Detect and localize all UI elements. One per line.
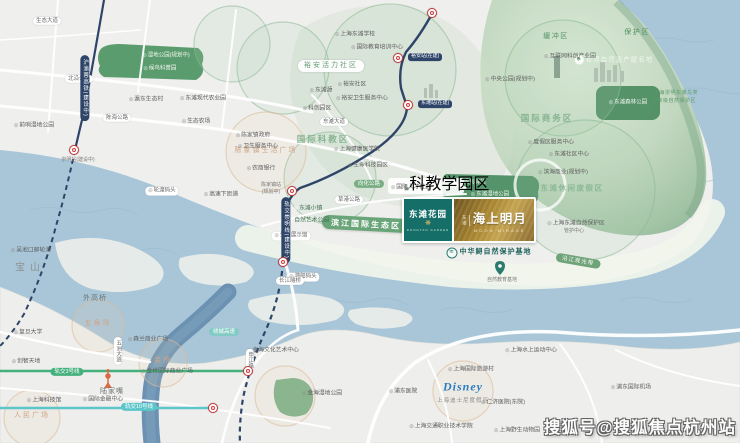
metro-station-marker bbox=[278, 257, 288, 267]
map-label-poi-bld: 科教学园区 bbox=[405, 176, 490, 194]
map-label-poi: 东滩现代农业园 bbox=[180, 96, 226, 103]
map-label-poi: 互联网科创产业园 bbox=[544, 54, 596, 61]
wheat-sprig-icon: ❋ bbox=[425, 222, 431, 226]
map-label-poi: 复旦大学 bbox=[14, 330, 43, 337]
project-logo-lockup: 东滩花园 ❋ DONGTAN GARDEN 东滩 海上明月 MOON MIRAG… bbox=[402, 197, 536, 243]
moon-mirage-name: 海上明月 bbox=[473, 208, 527, 227]
park-dongtan-forest: 东滩森林公园 bbox=[609, 100, 647, 107]
map-label-poi: 上海健康医学院 bbox=[334, 147, 380, 154]
map-label-pill-teal: 绕城高速 bbox=[209, 328, 239, 336]
map-label-poi: 科创园区 bbox=[303, 106, 332, 113]
zone-business-district: 国际商务区 bbox=[521, 114, 574, 124]
map-label-poi: 生态农场 bbox=[182, 119, 211, 126]
disney-resort-label: 上海迪士尼度假区 bbox=[437, 396, 489, 404]
map-label-poi: 国际金融中心 bbox=[83, 397, 123, 404]
map-label-tinygray: (规划中) bbox=[262, 190, 280, 196]
map-label-poi: 金桥国际商业广场 bbox=[141, 369, 193, 376]
rail-chongming-line-label: 轨交崇明线(建设中) bbox=[281, 197, 290, 263]
map-label-poi: 森兰商业广场 bbox=[128, 337, 168, 344]
map-label-poi-light: 东滩小镇 bbox=[294, 206, 323, 213]
map-label-pill-road: 草港公路 bbox=[335, 196, 363, 204]
map-label-poi: 浦东医院 bbox=[389, 389, 418, 396]
map-label-poi: 国际教育培训中心 bbox=[351, 45, 403, 52]
map-label-poi: 吴淞口邮轮港 bbox=[11, 248, 51, 255]
station-label-yuan: 裕安站(在建) bbox=[408, 53, 442, 61]
dongtan-garden-latin: DONGTAN GARDEN bbox=[407, 228, 449, 232]
map-label-poi: 上海野生动物园 bbox=[494, 428, 540, 435]
metro-station-marker bbox=[403, 100, 413, 110]
zone-protection: 保护区 bbox=[624, 29, 650, 37]
map-label-pill-green: 沿江观光带 bbox=[555, 253, 600, 270]
map-label-poi: 创智天地 bbox=[12, 359, 41, 366]
metro-station-marker bbox=[243, 366, 253, 376]
rail-hsr-label: 沪渝蓉高铁(建设中) bbox=[80, 55, 89, 121]
map-label-poi-light: 自然艺术公园 bbox=[289, 218, 329, 225]
map-label-pill-road-v: 五洲大道 bbox=[114, 337, 122, 365]
map-label-poi: 滨海商业(规划中) bbox=[538, 170, 588, 177]
station-label-dongtan: 东滩站(在建) bbox=[418, 100, 452, 108]
moon-mirage-logo: 东滩 海上明月 MOON MIRAGE bbox=[454, 199, 534, 241]
map-label-ztan: 金桥 bbox=[154, 357, 172, 365]
metro-station-marker bbox=[287, 186, 297, 196]
map-label-pill-road: 长江隧桥 bbox=[276, 277, 304, 285]
map-label-poi: 农商银行 bbox=[247, 166, 276, 173]
watermark: 搜狐号@搜狐焦点杭州站 bbox=[544, 414, 736, 438]
map-label-poi: 生命科技园区 bbox=[348, 163, 388, 170]
map-label-poi: 前哨湿地公园 bbox=[14, 123, 54, 130]
map-label-poi: 东滩社区中心 bbox=[549, 152, 589, 159]
map-label-poi: 上海交通职业技术学院 bbox=[409, 424, 472, 431]
location-map-image: 缓冲区保护区世界自然遗产提名地上海崇明东滩鸟类国家级自然保护区东滩森林公园裕安活… bbox=[0, 0, 740, 443]
dongtan-garden-logo: 东滩花园 ❋ DONGTAN GARDEN bbox=[404, 199, 452, 241]
map-label-pill-road: 陈海公路 bbox=[103, 114, 131, 122]
map-label-ztan: 五角场 bbox=[85, 320, 112, 328]
station-label-chongming: 崇明站(建设中) bbox=[61, 158, 94, 164]
map-label-poi: 金海文化艺术中心 bbox=[247, 348, 299, 355]
dongtan-garden-name: 东滩花园 bbox=[409, 208, 447, 220]
metro-line3-label: 轨交3号线 bbox=[50, 368, 83, 376]
map-label-ztan: 人民广场 bbox=[14, 412, 50, 420]
station-label-chenjiazhen: 陈家镇站 bbox=[261, 183, 281, 189]
zone-science-education: 国际科教区 bbox=[297, 135, 350, 145]
map-label-poi: 东滩源 bbox=[310, 88, 333, 95]
metro-station-marker bbox=[393, 53, 403, 63]
map-label-tinygray: 管护中心 bbox=[564, 229, 584, 235]
map-label-poi: 陈家镇政府 bbox=[236, 133, 270, 140]
map-label-pill-green-sm: 向化公路 bbox=[354, 180, 384, 188]
map-label-tg: 国家级自然保护区 bbox=[652, 99, 696, 105]
map-label-pill-road: 生态大道 bbox=[33, 17, 61, 25]
metro-station-marker bbox=[427, 8, 437, 18]
map-label-tg: 上海崇明东滩鸟类 bbox=[654, 91, 698, 97]
moon-mirage-latin: MOON MIRAGE bbox=[474, 228, 525, 233]
map-labels-layer: 缓冲区保护区世界自然遗产提名地上海崇明东滩鸟类国家级自然保护区东滩森林公园裕安活… bbox=[0, 0, 740, 443]
zone-riverside-eco: 滨江国际生态区 bbox=[322, 215, 411, 234]
metro-station-marker bbox=[69, 145, 79, 155]
map-label-poi: 裕安卫生服务中心 bbox=[336, 96, 388, 103]
metro-line10-label: 轨交10号线 bbox=[121, 403, 157, 411]
disney-logo: Disney bbox=[443, 380, 483, 395]
map-label-park-item: 湿地公园(规划中) bbox=[142, 53, 190, 60]
map-label-poi: 瀛东生态村 bbox=[129, 97, 163, 104]
map-label-poi: 上海东滩自然保护区 bbox=[547, 221, 605, 228]
map-label-poi: 中央公园(规划中) bbox=[485, 77, 535, 84]
map-label-poi: 高速下匝道 bbox=[204, 192, 238, 199]
map-label-tinygray: 自然教育基地 bbox=[487, 278, 517, 284]
district-baoshan: 宝山 bbox=[15, 262, 45, 274]
map-label-pill-white: 生态展示馆 bbox=[272, 232, 311, 241]
metro-station-marker bbox=[208, 403, 218, 413]
map-label-poi: 上海国际旅游村 bbox=[448, 367, 494, 374]
map-label-poi: 浦东国际机场 bbox=[611, 385, 651, 392]
map-label-park-item: 候鸟科普园 bbox=[144, 66, 177, 73]
map-label-poi: 度假区服务中心 bbox=[528, 140, 574, 147]
map-label-district-sm: 外高桥 bbox=[83, 295, 107, 303]
sturgeon-base-label: 中华鲟自然保护基地 bbox=[447, 248, 532, 259]
map-label-pill-white: 轮渡码头 bbox=[145, 187, 178, 196]
map-label-poi: 上海水上运动中心 bbox=[505, 348, 557, 355]
map-label-poi: 上海东滩学校 bbox=[335, 32, 375, 39]
map-label-pill-road: 东滩大道 bbox=[320, 118, 348, 126]
map-label-poi: 上海科技馆 bbox=[27, 398, 61, 405]
zone-buffer: 缓冲区 bbox=[543, 33, 569, 41]
zone-yuan-community: 裕安活力社区 bbox=[298, 60, 364, 72]
map-label-district-sm: 陆家嘴 bbox=[100, 388, 124, 396]
map-label-poi: 裕安社区 bbox=[338, 82, 367, 89]
map-label-poi: 金海湿地公园 bbox=[302, 391, 342, 398]
map-label-poi: 卫生服务中心 bbox=[238, 144, 278, 151]
zone-resort: 东滩休闲度假区 bbox=[541, 185, 604, 194]
moon-mirage-prefix: 东滩 bbox=[461, 215, 470, 226]
